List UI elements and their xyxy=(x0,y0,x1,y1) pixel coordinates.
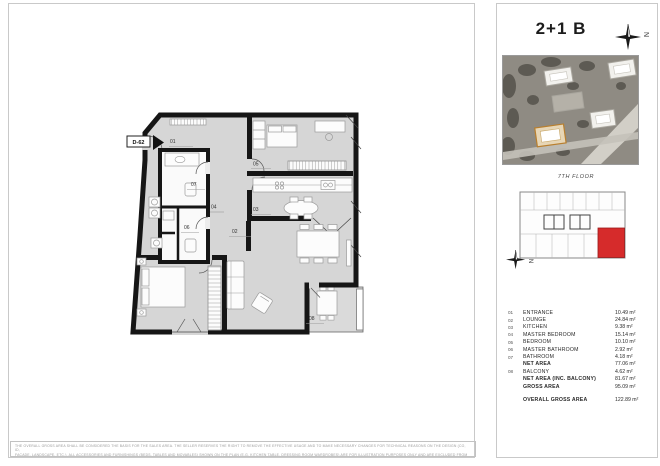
room-label-06: 06 xyxy=(184,225,190,231)
room-label-05: 05 xyxy=(253,162,259,168)
legend-row: 06MASTER BATHROOM2.92 m² xyxy=(508,346,650,353)
room-label-08: 08 xyxy=(309,316,315,322)
key-plan xyxy=(500,186,640,276)
room-label-03: 03 xyxy=(253,207,259,213)
legend-row: 02LOUNGE24.84 m² xyxy=(508,316,650,323)
disclaimer-line-1: THE OVERALL GROSS AREA SHALL BE CONSIDER… xyxy=(15,444,471,454)
disclaimer-note: THE OVERALL GROSS AREA SHALL BE CONSIDER… xyxy=(10,441,476,457)
floor-plan: 01 05 07 04 03 06 02 08 D-62 xyxy=(125,105,375,345)
key-plan-north-letter: N xyxy=(527,259,533,263)
legend-row: 01ENTRANCE10.49 m² xyxy=(508,309,650,316)
legend-row: 04MASTER BEDROOM15.14 m² xyxy=(508,331,650,338)
unit-code-text: D-62 xyxy=(133,140,145,146)
legend-row-net-area-inc: NET AREA (INC. BALCONY)81.67 m² xyxy=(508,376,650,383)
plan-sheet: 01 05 07 04 03 06 02 08 D-62 2+1 B N xyxy=(0,0,660,466)
legend-row-gross-area: GROSS AREA95.09 m² xyxy=(508,383,650,390)
disclaimer-line-2: FAÇADE, LANDSCAPE, ETC.). ALL ACCESSORIE… xyxy=(15,453,471,457)
bathroom-block xyxy=(160,150,210,262)
room-label-01: 01 xyxy=(170,139,176,145)
entrance-cabinet xyxy=(170,119,206,125)
floor-label: 7TH FLOOR xyxy=(500,174,652,180)
north-letter: N xyxy=(642,32,649,37)
highlighted-unit xyxy=(598,228,625,258)
legend-row: 05BEDROOM10.10 m² xyxy=(508,339,650,346)
legend-row: 08BALCONY4.62 m² xyxy=(508,368,650,375)
room-label-07: 07 xyxy=(191,182,197,188)
legend-row-overall-gross: OVERALL GROSS AREA122.89 m² xyxy=(508,397,650,404)
unit-type-title: 2+1 B xyxy=(506,19,616,39)
photo-highlighted-building xyxy=(535,124,566,147)
north-compass-icon xyxy=(615,24,641,50)
room-label-02: 02 xyxy=(232,229,238,235)
legend-row-net-area: NET AREA77.06 m² xyxy=(508,361,650,368)
aerial-photo xyxy=(502,55,639,165)
area-legend: 01ENTRANCE10.49 m² 02LOUNGE24.84 m² 03KI… xyxy=(508,309,650,404)
room-label-04: 04 xyxy=(211,205,217,211)
legend-row: 07BATHROOM4.18 m² xyxy=(508,353,650,360)
legend-row: 03KITCHEN9.38 m² xyxy=(508,324,650,331)
